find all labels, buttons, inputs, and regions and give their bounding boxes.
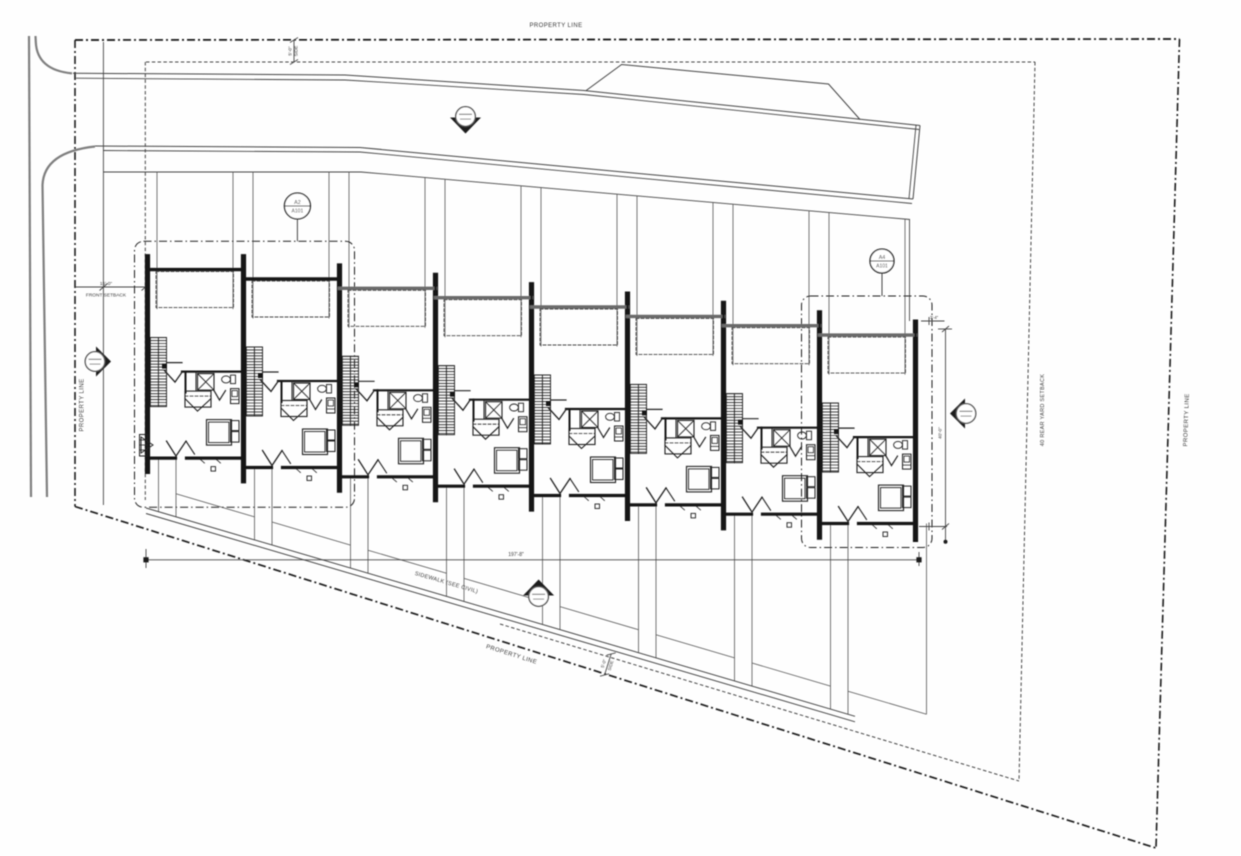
svg-text:3'-4": 3'-4" [930,315,939,320]
svg-text:5'-0": 5'-0" [288,46,293,56]
svg-text:40'-0": 40'-0" [938,427,943,439]
svg-text:40 REAR YARD SETBACK: 40 REAR YARD SETBACK [1040,374,1046,446]
svg-text:197'-8": 197'-8" [508,552,524,558]
svg-text:FRONT SETBACK: FRONT SETBACK [86,293,127,299]
svg-text:15'-0": 15'-0" [100,281,113,287]
svg-text:PROPERTY LINE: PROPERTY LINE [530,23,583,29]
svg-text:A101: A101 [292,209,304,215]
svg-text:PROPERTY LINE: PROPERTY LINE [80,379,86,432]
svg-text:A4: A4 [879,255,886,261]
svg-text:A101: A101 [876,264,888,270]
svg-text:A2: A2 [294,200,301,206]
svg-text:SIDE: SIDE [294,46,299,57]
